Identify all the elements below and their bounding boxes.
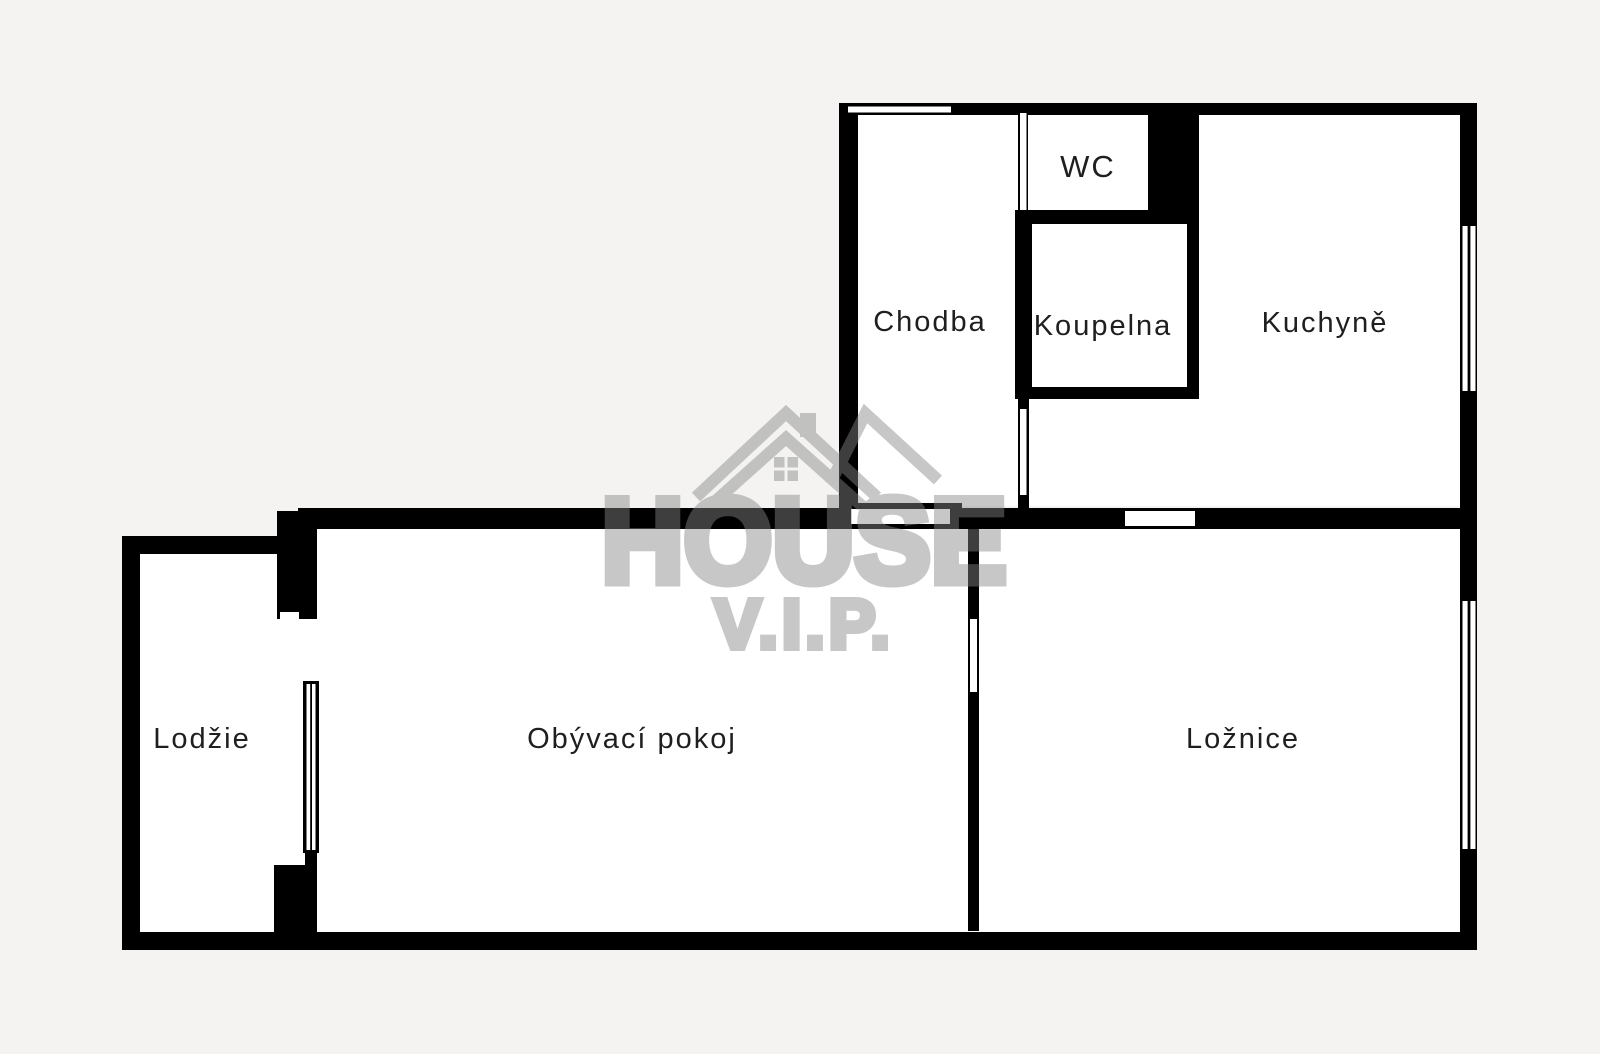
svg-text:Koupelna: Koupelna [1034,310,1173,342]
svg-text:Lodžie: Lodžie [153,723,250,755]
svg-text:Chodba: Chodba [873,306,987,338]
svg-text:Obývací pokoj: Obývací pokoj [527,723,737,755]
svg-text:Kuchyně: Kuchyně [1262,307,1389,339]
svg-text:Ložnice: Ložnice [1186,723,1300,755]
svg-text:V.I.P.: V.I.P. [714,585,894,663]
svg-text:WC: WC [1060,149,1116,184]
